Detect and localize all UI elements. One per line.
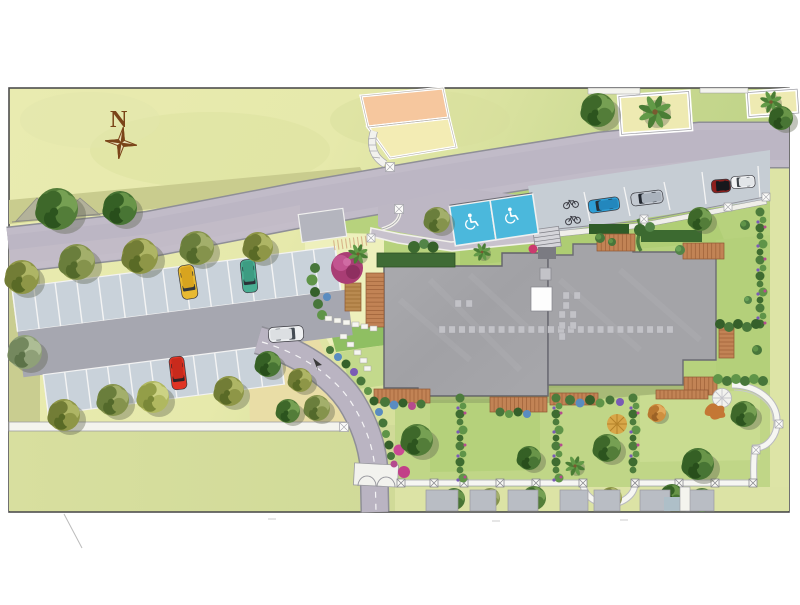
svg-text:N: N bbox=[110, 107, 128, 133]
